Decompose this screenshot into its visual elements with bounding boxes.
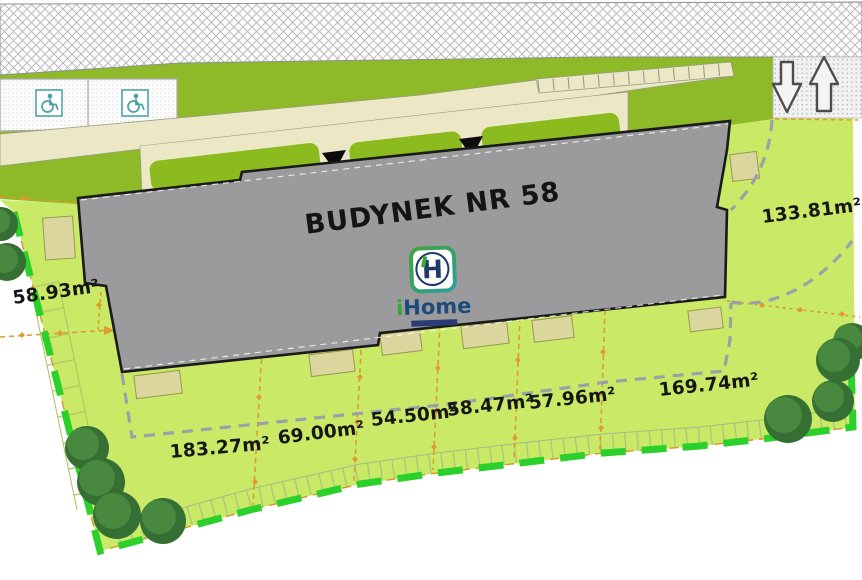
ihome-logo: H iHome: [387, 244, 480, 327]
tree-icon: [764, 395, 812, 443]
tree-icon: [812, 380, 854, 422]
tree-icon: [816, 338, 860, 382]
logo-home: Home: [403, 294, 472, 320]
site-plan: BUDYNEK NR 58 H iHome 58.93m² 133.81m² 1…: [0, 0, 862, 580]
ihome-logo-badge: H: [408, 245, 457, 294]
logo-h-monogram: H: [412, 254, 452, 284]
tree-icon: [93, 491, 141, 539]
ihome-logo-text: iHome: [388, 295, 479, 319]
tree-icon: [0, 243, 26, 281]
tree-icon: [140, 498, 186, 544]
